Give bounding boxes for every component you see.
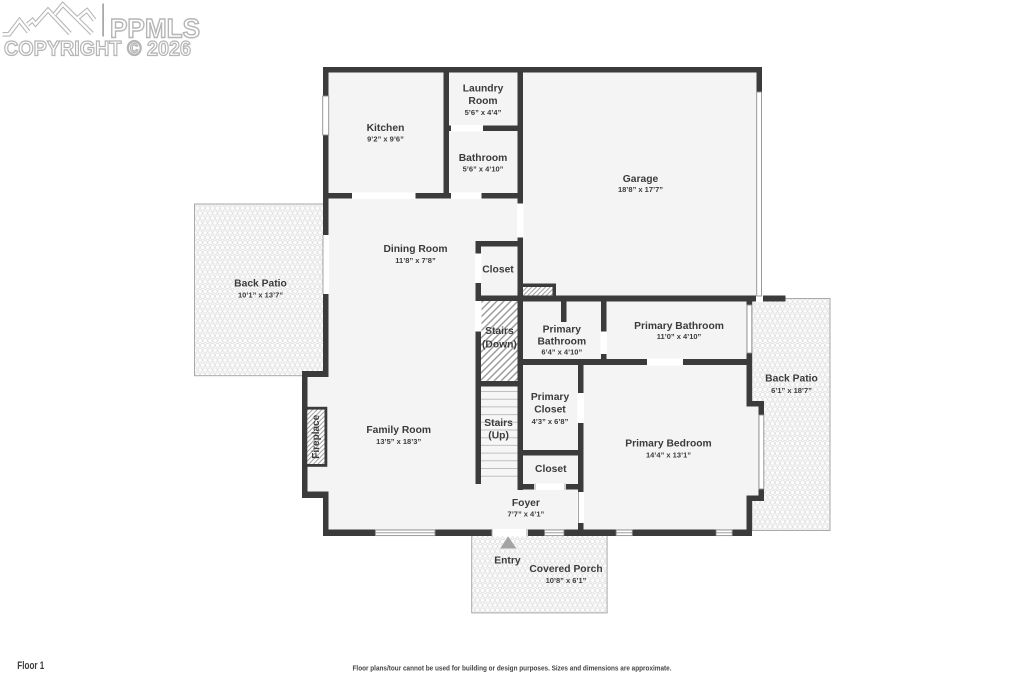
svg-text:18’8” x 17’7”: 18’8” x 17’7” <box>618 185 663 194</box>
svg-text:10’8” x 6’1”: 10’8” x 6’1” <box>546 576 587 585</box>
svg-text:Kitchen: Kitchen <box>367 123 405 134</box>
svg-text:5’6” x 4’10”: 5’6” x 4’10” <box>463 165 504 174</box>
svg-text:Closet: Closet <box>534 404 566 415</box>
svg-text:Family Room: Family Room <box>366 425 431 436</box>
svg-text:Primary Bathroom: Primary Bathroom <box>634 321 724 332</box>
svg-text:Closet: Closet <box>482 264 514 275</box>
svg-text:COPYRIGHT © 2026: COPYRIGHT © 2026 <box>4 37 191 61</box>
svg-text:Closet: Closet <box>535 464 567 475</box>
svg-text:Floor plans/tour cannot be use: Floor plans/tour cannot be used for buil… <box>353 663 672 672</box>
svg-text:11’8” x 7’8”: 11’8” x 7’8” <box>395 256 436 265</box>
svg-text:Primary Bedroom: Primary Bedroom <box>625 438 711 449</box>
svg-text:Laundry: Laundry <box>463 84 504 95</box>
svg-text:Primary: Primary <box>543 324 582 335</box>
svg-text:Back Patio: Back Patio <box>234 278 287 289</box>
svg-text:7’7” x 4’1”: 7’7” x 4’1” <box>508 510 545 519</box>
svg-text:Room: Room <box>468 96 497 107</box>
svg-text:13’5” x 18’3”: 13’5” x 18’3” <box>376 437 421 446</box>
svg-text:Stairs: Stairs <box>485 326 514 337</box>
svg-text:6’4” x 4’10”: 6’4” x 4’10” <box>541 348 582 357</box>
svg-text:(Down): (Down) <box>482 340 517 351</box>
svg-text:9’2” x 9’6”: 9’2” x 9’6” <box>367 134 404 143</box>
svg-text:Garage: Garage <box>623 174 659 185</box>
svg-text:Stairs: Stairs <box>484 418 513 429</box>
svg-text:Foyer: Foyer <box>512 498 540 509</box>
svg-text:5’6” x 4’4”: 5’6” x 4’4” <box>465 108 502 117</box>
svg-text:Dining Room: Dining Room <box>383 244 447 255</box>
svg-text:Covered Porch: Covered Porch <box>529 564 602 575</box>
svg-text:Bathroom: Bathroom <box>537 336 586 347</box>
svg-text:10’1” x 13’7”: 10’1” x 13’7” <box>238 290 283 299</box>
svg-text:Bathroom: Bathroom <box>459 153 508 164</box>
svg-text:Primary: Primary <box>531 392 570 403</box>
svg-text:Fireplace: Fireplace <box>311 414 322 458</box>
svg-text:4’3” x 6’8”: 4’3” x 6’8” <box>532 417 569 426</box>
svg-text:Back Patio: Back Patio <box>765 374 818 385</box>
svg-text:14’4” x 13’1”: 14’4” x 13’1” <box>646 450 691 459</box>
svg-text:Entry: Entry <box>494 555 521 566</box>
svg-text:11’0” x 4’10”: 11’0” x 4’10” <box>657 332 702 341</box>
svg-text:6’1” x 18’7”: 6’1” x 18’7” <box>771 386 812 395</box>
svg-text:(Up): (Up) <box>488 431 509 442</box>
svg-text:Floor 1: Floor 1 <box>17 660 44 672</box>
